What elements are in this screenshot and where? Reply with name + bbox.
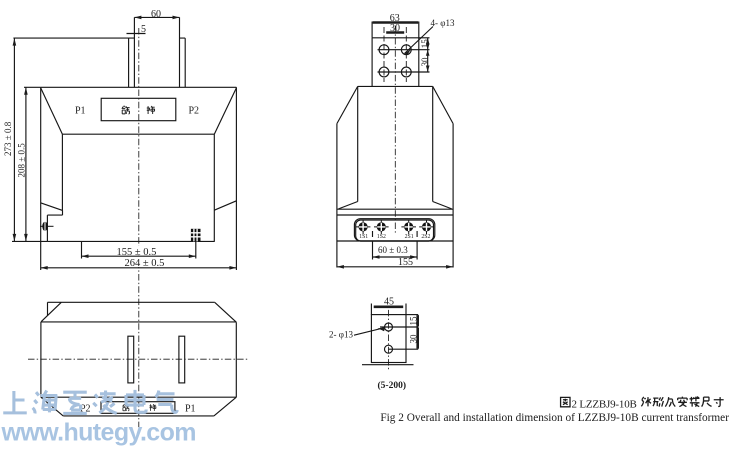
svg-text:2S1: 2S1 <box>405 234 414 240</box>
svg-text:P1: P1 <box>185 404 196 415</box>
svg-text:30: 30 <box>390 23 400 34</box>
svg-text:2- φ13: 2- φ13 <box>329 329 353 339</box>
svg-text:45: 45 <box>384 297 394 308</box>
svg-text:155: 155 <box>398 257 413 268</box>
svg-text:155 ± 0.5: 155 ± 0.5 <box>117 247 157 258</box>
svg-text:15: 15 <box>409 316 419 326</box>
svg-text:60: 60 <box>151 9 161 20</box>
svg-text:1S1: 1S1 <box>359 234 368 240</box>
svg-text:1S2: 1S2 <box>377 234 386 240</box>
svg-text:P1: P1 <box>75 106 86 117</box>
svg-text:2 LZZBJ9-10B: 2 LZZBJ9-10B <box>572 398 637 410</box>
svg-text:30: 30 <box>409 334 419 344</box>
svg-text:P2: P2 <box>189 106 200 117</box>
svg-text:4- φ13: 4- φ13 <box>431 18 455 28</box>
svg-text:Fig 2 Overall and installation: Fig 2 Overall and installation dimension… <box>380 412 729 424</box>
svg-text:(5-200): (5-200) <box>378 380 407 391</box>
svg-text:264 ± 0.5: 264 ± 0.5 <box>125 258 165 269</box>
svg-text:www.hutegy.com: www.hutegy.com <box>1 419 196 447</box>
svg-text:273 ± 0.8: 273 ± 0.8 <box>3 121 13 156</box>
svg-text:2S2: 2S2 <box>421 234 430 240</box>
svg-text:208 ± 0.5: 208 ± 0.5 <box>17 143 27 178</box>
svg-text:5: 5 <box>141 24 146 35</box>
svg-text:60 ± 0.3: 60 ± 0.3 <box>378 245 408 255</box>
svg-text:15: 15 <box>420 39 430 49</box>
svg-text:30: 30 <box>420 57 430 67</box>
